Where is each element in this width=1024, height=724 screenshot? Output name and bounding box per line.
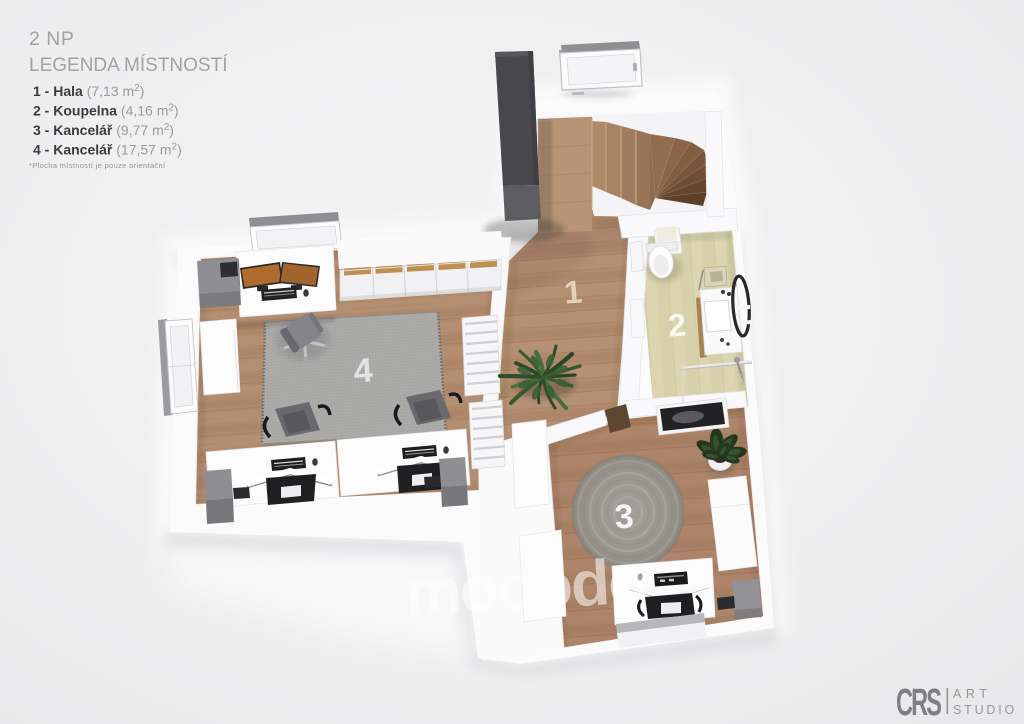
svg-text:2 - Koupelna (4,16 m2): 2 - Koupelna (4,16 m2): [33, 103, 179, 119]
svg-text:4 - Kancelář (17,57 m2): 4 - Kancelář (17,57 m2): [33, 142, 182, 158]
svg-text:ART: ART: [953, 687, 992, 701]
svg-text:mooodo: mooodo: [403, 544, 647, 628]
svg-text:*Plocha místností je pouze ori: *Plocha místností je pouze orientační: [29, 161, 166, 170]
svg-text:2: 2: [667, 306, 687, 343]
svg-text:2 NP: 2 NP: [29, 28, 74, 50]
svg-text:3: 3: [613, 497, 635, 536]
svg-text:3 - Kancelář (9,77 m2): 3 - Kancelář (9,77 m2): [33, 122, 174, 138]
svg-text:STUDIO: STUDIO: [953, 703, 1017, 717]
svg-text:1 - Hala (7,13 m2): 1 - Hala (7,13 m2): [33, 83, 144, 99]
svg-text:4: 4: [352, 351, 374, 390]
svg-text:LEGENDA MÍSTNOSTÍ: LEGENDA MÍSTNOSTÍ: [29, 55, 228, 76]
svg-text:1: 1: [563, 273, 583, 310]
svg-text:CRS: CRS: [896, 680, 941, 723]
